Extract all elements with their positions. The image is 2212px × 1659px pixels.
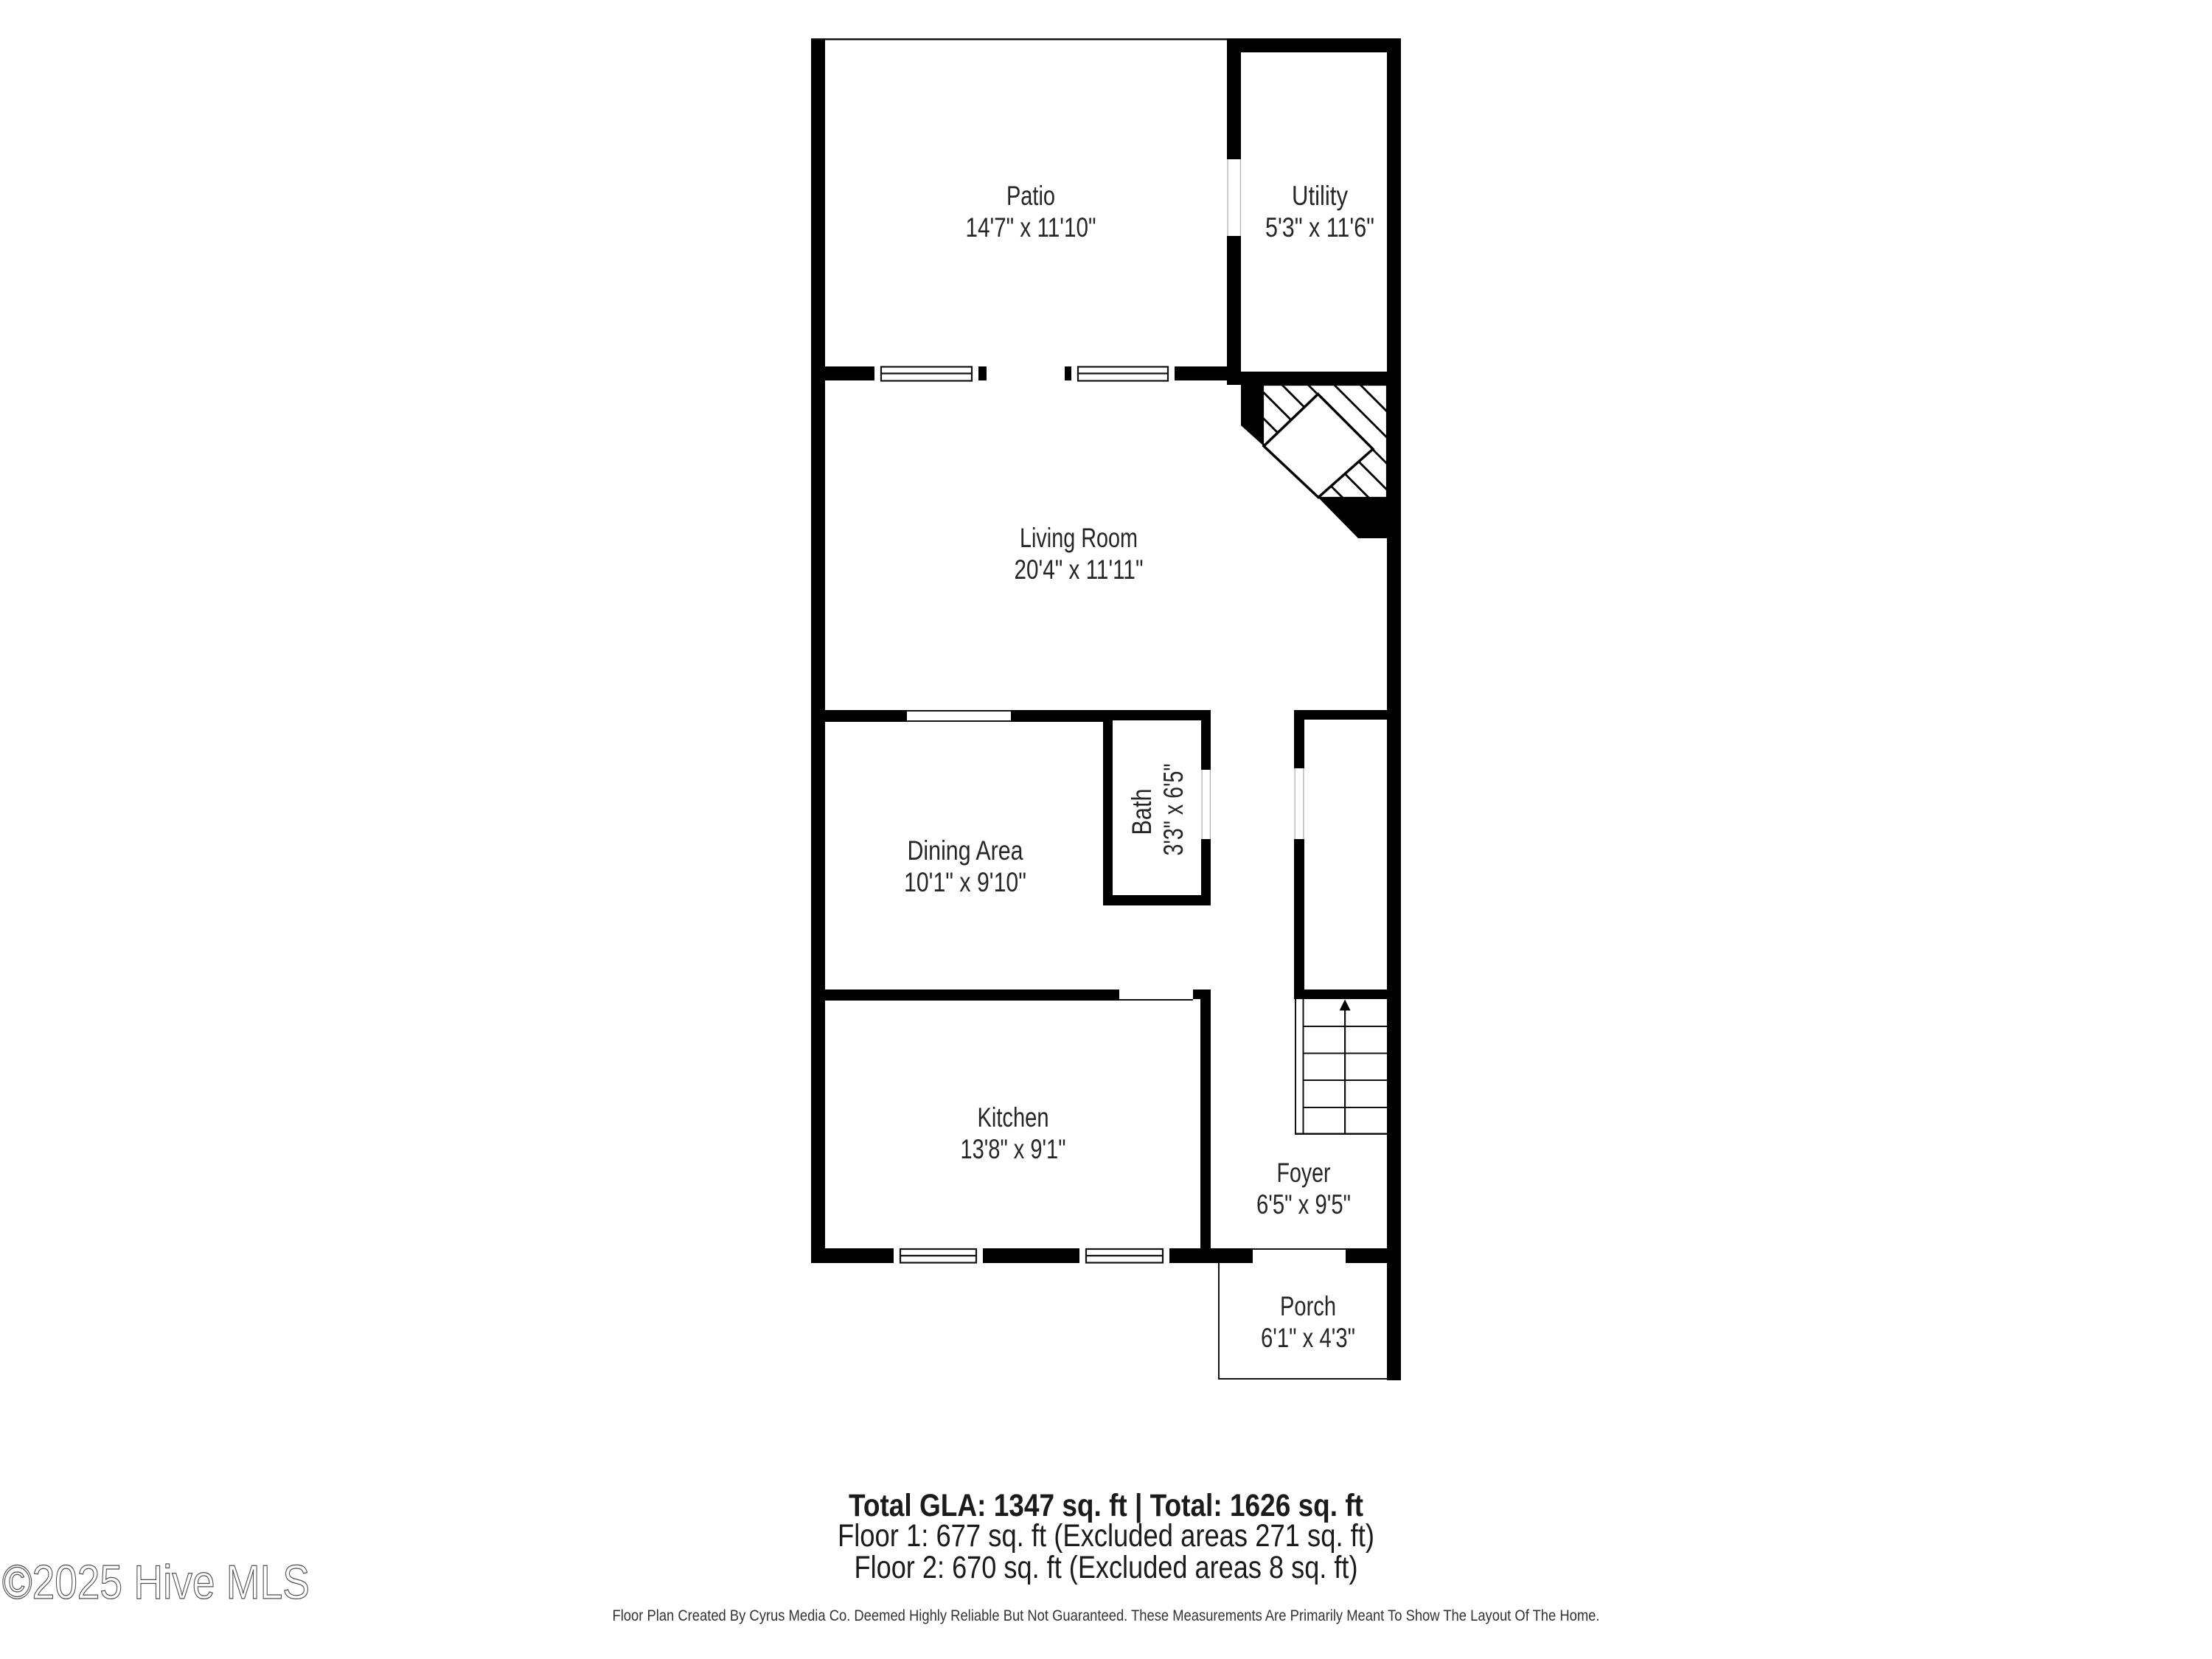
svg-text:14'7" x 11'10": 14'7" x 11'10" [966, 212, 1096, 243]
svg-text:6'1" x 4'3": 6'1" x 4'3" [1261, 1323, 1355, 1353]
svg-text:Floor 2: 670 sq. ft (Excluded: Floor 2: 670 sq. ft (Excluded areas 8 sq… [855, 1550, 1358, 1585]
svg-text:6'5" x 9'5": 6'5" x 9'5" [1256, 1189, 1351, 1220]
svg-text:20'4" x 11'11": 20'4" x 11'11" [1015, 554, 1144, 585]
svg-text:Floor Plan Created By Cyrus Me: Floor Plan Created By Cyrus Media Co. De… [613, 1607, 1600, 1624]
svg-text:Bath: Bath [1127, 789, 1157, 835]
svg-text:3'3" x 6'5": 3'3" x 6'5" [1158, 764, 1189, 856]
svg-text:Dining Area: Dining Area [908, 835, 1023, 866]
svg-text:Porch: Porch [1280, 1291, 1336, 1321]
svg-text:Utility: Utility [1292, 181, 1348, 211]
svg-text:13'8" x 9'1": 13'8" x 9'1" [961, 1134, 1066, 1164]
svg-text:Living Room: Living Room [1020, 523, 1138, 553]
svg-text:©2025 Hive MLS: ©2025 Hive MLS [2, 1555, 310, 1609]
svg-text:10'1" x 9'10": 10'1" x 9'10" [904, 867, 1026, 897]
svg-text:Patio: Patio [1006, 181, 1055, 211]
svg-text:Kitchen: Kitchen [978, 1102, 1049, 1133]
svg-text:Floor 1: 677 sq. ft (Excluded: Floor 1: 677 sq. ft (Excluded areas 271 … [838, 1518, 1374, 1554]
svg-text:Foyer: Foyer [1277, 1158, 1331, 1188]
svg-text:5'3" x 11'6": 5'3" x 11'6" [1265, 212, 1374, 243]
